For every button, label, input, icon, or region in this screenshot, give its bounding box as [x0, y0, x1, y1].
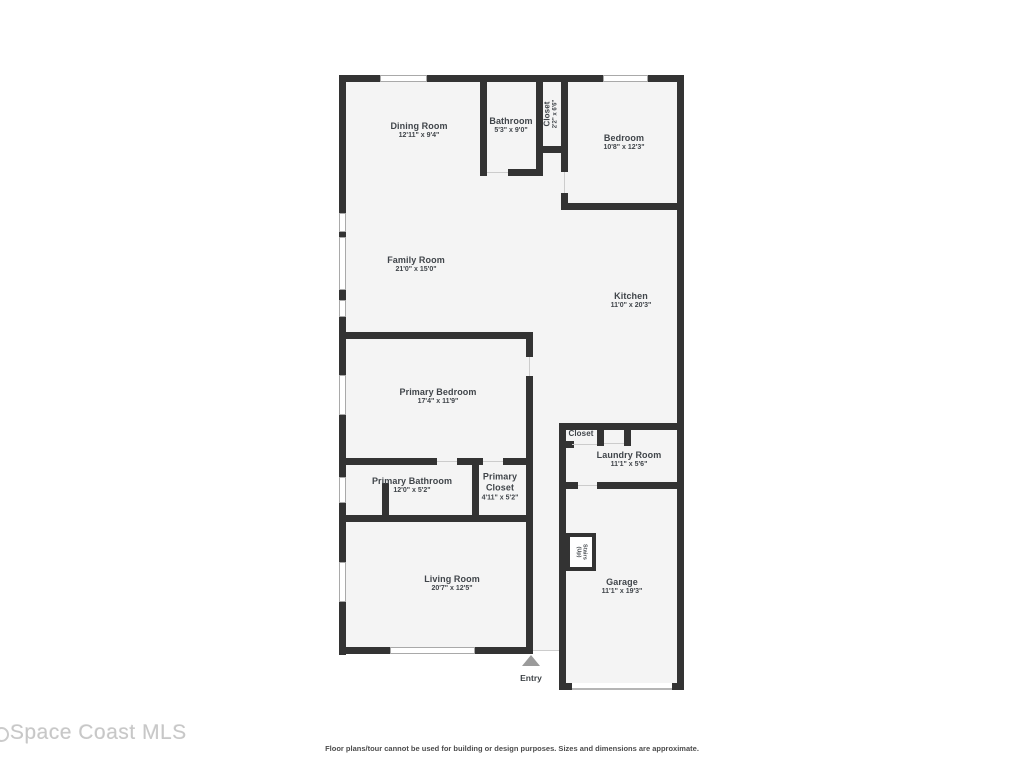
- door-opening-entry: [533, 650, 559, 651]
- window-dining-top: [380, 75, 427, 82]
- door-opening-laundry-closet: [572, 444, 597, 445]
- wall-laundry-closet-jamb-2: [624, 430, 631, 446]
- wall-dining-bathroom-divider: [480, 82, 487, 176]
- entry-arrow-icon: [522, 655, 540, 666]
- door-opening-primary-closet: [483, 461, 503, 462]
- sliding-door-family-left: [339, 237, 346, 290]
- room-label-primary-bathroom: Primary Bathroom 12'0" x 5'2": [372, 476, 452, 496]
- wall-laundry-bottom-cap: [566, 482, 578, 489]
- disclaimer-text: Floor plans/tour cannot be used for buil…: [325, 744, 699, 753]
- room-label-laundry-room: Laundry Room 11'1" x 5'6": [597, 450, 662, 470]
- room-label-dining-room: Dining Room 12'11" x 9'4": [390, 121, 447, 141]
- wall-hall-bedroom-lower: [561, 193, 568, 210]
- wall-bathroom-closet-divider: [536, 82, 543, 176]
- room-label-hall-closet: Closet 2'2" x 6'6": [542, 100, 560, 129]
- room-label-primary-closet: Primary Closet 4'11" x 5'2": [477, 471, 523, 502]
- room-label-kitchen: Kitchen 11'0" x 20'3": [611, 291, 652, 311]
- room-label-living-room: Living Room 20'7" x 12'5": [424, 574, 480, 594]
- room-label-stairs: Stairs (Up): [575, 544, 588, 560]
- window-living-bottom: [390, 647, 475, 654]
- door-opening-primary-bedroom: [529, 357, 530, 376]
- entry-label: Entry: [520, 673, 542, 683]
- room-label-bedroom: Bedroom 10'8" x 12'3": [603, 133, 644, 153]
- door-opening-bedroom: [564, 172, 565, 193]
- wall-primary-bathroom-top-b: [457, 458, 483, 465]
- wall-primary-bedroom-right-upper: [526, 339, 533, 357]
- room-label-laundry-closet: Closet: [568, 429, 593, 439]
- wall-laundry-closet-jamb-1: [597, 430, 604, 446]
- room-label-garage: Garage 11'1" x 19'3": [602, 577, 643, 597]
- window-primary-bedroom-left: [339, 375, 346, 415]
- wall-bedroom-bottom: [561, 203, 684, 210]
- wall-primary-bedroom-top: [339, 332, 533, 339]
- wall-primary-bathroom-top-a: [339, 458, 437, 465]
- wall-primary-bathroom-bottom: [339, 515, 533, 522]
- door-opening-primary-bathroom: [437, 461, 457, 462]
- watermark-text: Space Coast MLS: [10, 721, 187, 745]
- room-label-primary-bedroom: Primary Bedroom 17'4" x 11'9": [399, 387, 476, 407]
- wall-exterior-right: [677, 75, 684, 690]
- room-label-family-room: Family Room 21'0" x 15'0": [387, 255, 445, 275]
- door-opening-bathroom: [487, 172, 508, 173]
- window-living-left: [339, 562, 346, 602]
- wall-primary-bedroom-right-lower: [526, 376, 533, 647]
- garage-door-opening: [572, 683, 672, 690]
- floorplan-page: { "watermark": { "text": "Space Coast ML…: [0, 0, 1024, 768]
- wall-laundry-bottom: [597, 482, 684, 489]
- window-family-left-1: [339, 213, 346, 232]
- door-opening-laundry-nook: [604, 443, 624, 444]
- room-label-bathroom: Bathroom 5'3" x 9'0": [489, 116, 532, 136]
- floor-area-main: [342, 78, 681, 651]
- window-bedroom-top: [603, 75, 648, 82]
- floor-plan: Stairs (Up) Dining Room 12'11" x 9'4" Ba…: [0, 0, 1024, 768]
- wall-garage-left: [559, 423, 566, 690]
- wall-hall-bedroom-upper: [561, 82, 568, 172]
- floor-area-garage: [562, 648, 681, 685]
- door-opening-laundry-garage: [578, 485, 597, 486]
- wall-primary-bathroom-top-c: [503, 458, 533, 465]
- window-family-left-2: [339, 300, 346, 317]
- window-primary-bathroom-left: [339, 477, 346, 503]
